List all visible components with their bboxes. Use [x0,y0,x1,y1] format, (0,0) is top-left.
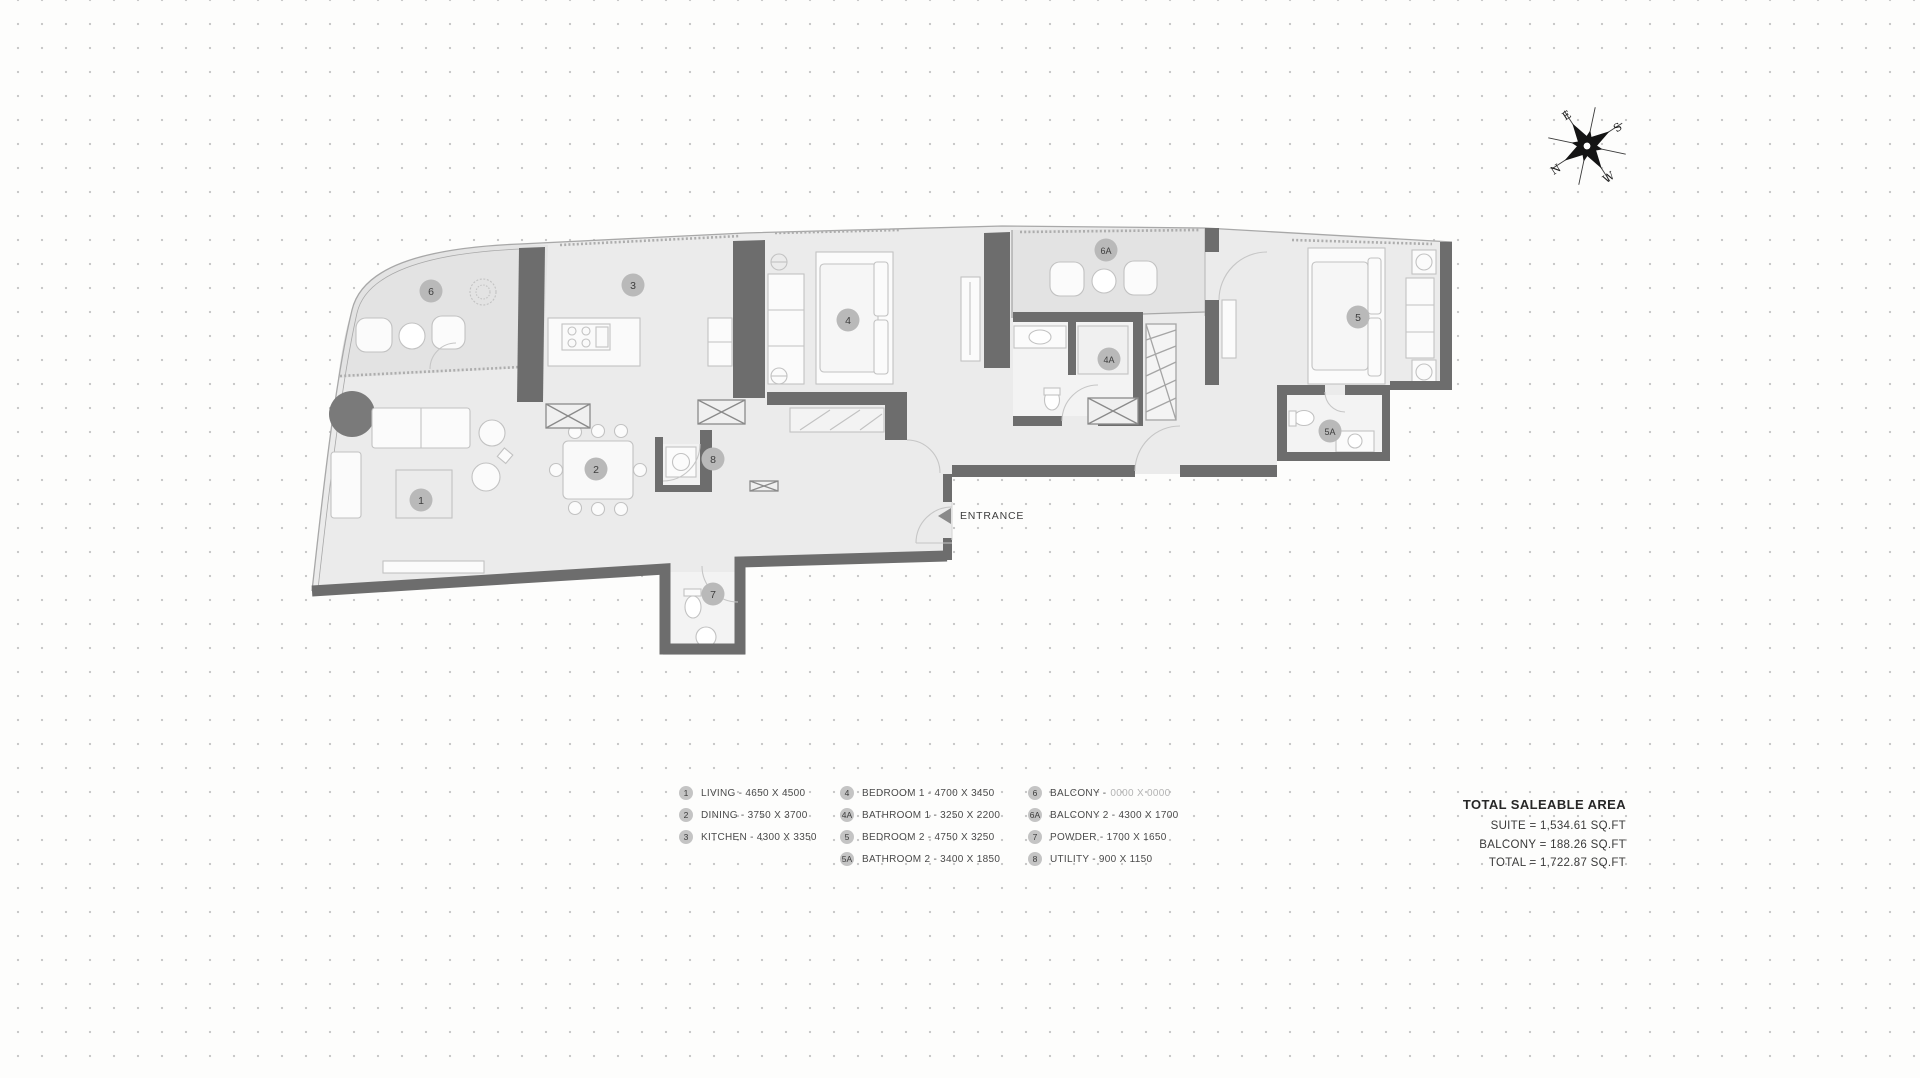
room-badge-bedroom2: 5 [1347,306,1370,329]
legend-badge: 5 [840,830,854,844]
legend-item-living: 1 LIVING - 4650 X 4500 [679,782,821,804]
total-saleable-area: TOTAL SALEABLE AREA SUITE = 1,534.61 SQ.… [1330,797,1626,873]
legend-badge: 7 [1028,830,1042,844]
legend-badge: 2 [679,808,693,822]
room-badge-bathroom1: 4A [1098,348,1121,371]
compass-s: S [1611,120,1624,135]
totals-total: TOTAL = 1,722.87 SQ.FT [1330,854,1626,873]
svg-text:6: 6 [428,286,434,298]
svg-text:4: 4 [845,315,851,327]
room-badge-balcony2: 6A [1095,239,1118,262]
page-canvas: 1 2 3 4 4A 5 5A 6 6A 7 8 E [0,0,1920,1078]
sideboard [383,561,484,573]
legend-item-dining: 2 DINING - 3750 X 3700 [679,804,821,826]
totals-suite: SUITE = 1,534.61 SQ.FT [1330,817,1626,836]
shaft-box [546,404,590,428]
wardrobe [768,274,804,384]
svg-text:1: 1 [418,495,424,507]
room-badge-kitchen: 3 [622,274,645,297]
utility-fixtures [666,447,696,477]
svg-text:5A: 5A [1324,427,1335,437]
room-badge-bathroom2: 5A [1319,420,1342,443]
legend-column-1: 1 LIVING - 4650 X 4500 2 DINING - 3750 X… [679,782,821,848]
shaft-box [750,481,778,491]
svg-text:2: 2 [593,464,599,476]
legend-column-3: 6 BALCONY - 0000 X 0000 6A BALCONY 2 - 4… [1028,782,1182,870]
room-badge-balcony: 6 [420,280,443,303]
svg-text:5: 5 [1355,312,1361,324]
compass-e: E [1560,108,1574,123]
room-badge-dining: 2 [585,458,608,481]
room-badge-powder: 7 [702,583,725,606]
svg-text:7: 7 [710,589,716,601]
closet [790,408,884,432]
svg-text:4A: 4A [1103,355,1114,365]
legend-badge: 5A [840,852,854,866]
svg-text:3: 3 [630,280,636,292]
entrance-arrow-icon [938,508,951,524]
legend-item-kitchen: 3 KITCHEN - 4300 X 3350 [679,826,821,848]
legend-item-bathroom2: 5A BATHROOM 2 - 3400 X 1850 [840,848,1004,870]
legend-badge: 4 [840,786,854,800]
compass-rose-icon: N E S W [1527,86,1652,211]
room-badge-living: 1 [410,489,433,512]
legend-column-2: 4 BEDROOM 1 - 4700 X 3450 4A BATHROOM 1 … [840,782,1004,870]
totals-balcony: BALCONY = 188.26 SQ.FT [1330,836,1626,855]
totals-title: TOTAL SALEABLE AREA [1330,797,1626,812]
shaft-box [1088,398,1138,424]
legend-item-bathroom1: 4A BATHROOM 1 - 3250 X 2200 [840,804,1004,826]
room-badge-utility: 8 [702,448,725,471]
entrance-marker: ENTRANCE [938,508,1024,524]
legend-item-utility: 8 UTILITY - 900 X 1150 [1028,848,1182,870]
stairs [1146,324,1176,420]
legend-badge: 1 [679,786,693,800]
legend-item-powder: 7 POWDER - 1700 X 1650 [1028,826,1182,848]
legend-badge: 3 [679,830,693,844]
legend-item-bedroom2: 5 BEDROOM 2 - 4750 X 3250 [840,826,1004,848]
foyer-console [961,277,980,361]
legend-item-balcony2: 6A BALCONY 2 - 4300 X 1700 [1028,804,1182,826]
legend-badge: 6 [1028,786,1042,800]
svg-text:6A: 6A [1100,246,1111,256]
legend-badge: 8 [1028,852,1042,866]
balcony-6-floor [338,244,548,378]
legend-badge: 6A [1028,808,1042,822]
shaft-box [698,400,745,424]
round-dark-table [329,391,375,437]
wardrobe [1406,278,1434,358]
room-badge-bedroom1: 4 [837,309,860,332]
legend-item-bedroom1: 4 BEDROOM 1 - 4700 X 3450 [840,782,1004,804]
entrance-label: ENTRANCE [960,510,1024,522]
legend-badge: 4A [840,808,854,822]
legend-item-balcony: 6 BALCONY - 0000 X 0000 [1028,782,1182,804]
svg-text:8: 8 [710,454,716,466]
compass-n: N [1548,161,1563,177]
